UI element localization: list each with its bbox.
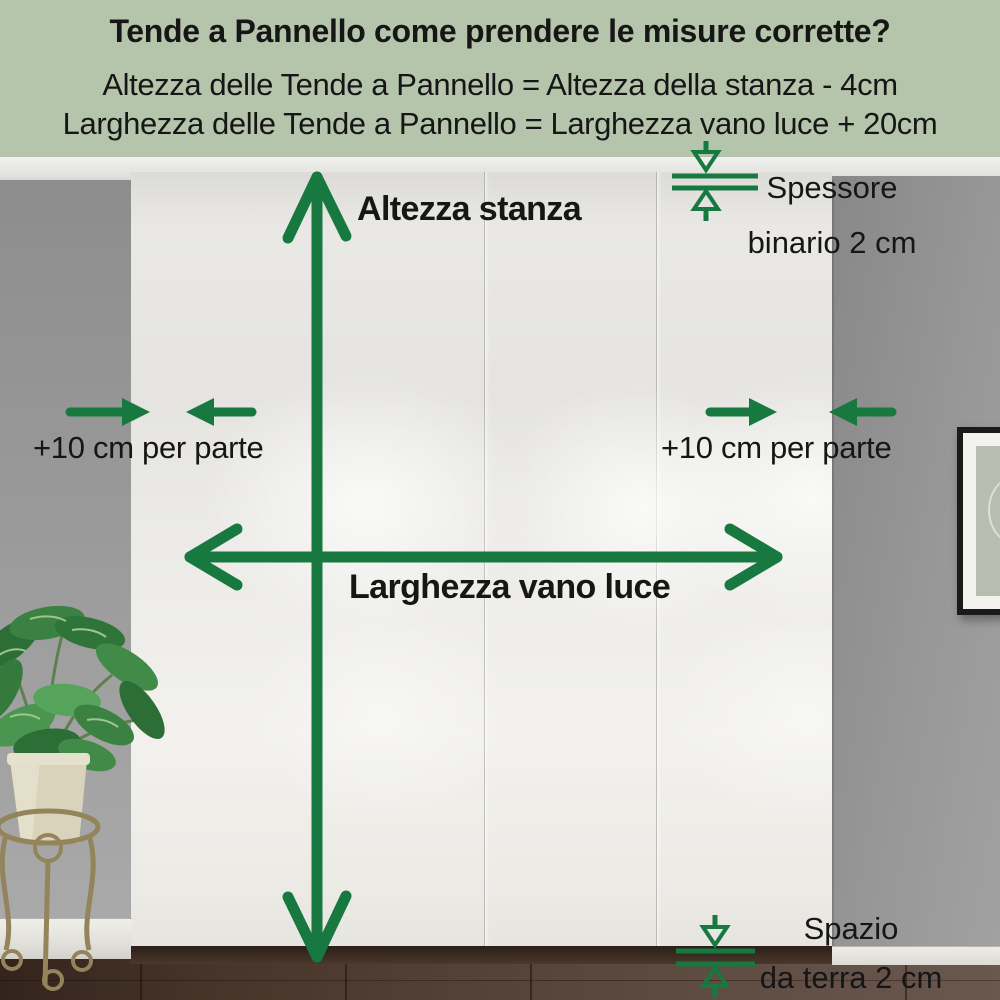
curtain-measuring-infographic: Tende a Pannello come prendere le misure… — [0, 0, 1000, 1000]
room-height-label: Altezza stanza — [357, 190, 581, 229]
picture-frame — [957, 427, 1000, 615]
floor-gap-label-line1: Spazio — [731, 904, 971, 953]
window-light-glow — [671, 602, 832, 822]
framed-artwork — [976, 446, 1000, 596]
floor-gap-label-line2: da terra 2 cm — [731, 953, 971, 1000]
floor-tile-line — [345, 958, 347, 1000]
window-light-glow — [251, 602, 511, 822]
height-formula-text: Altezza delle Tende a Pannello = Altezza… — [0, 67, 1000, 103]
right-margin-label: +10 cm per parte — [661, 430, 891, 466]
floor-gap-label: Spazio da terra 2 cm — [731, 904, 971, 1000]
window-light-glow — [666, 372, 832, 622]
curtain-panels — [131, 172, 832, 952]
page-title: Tende a Pannello come prendere le misure… — [0, 13, 1000, 50]
wall-corner-line — [832, 180, 834, 948]
window-width-label: Larghezza vano luce — [349, 568, 670, 607]
left-margin-label: +10 cm per parte — [33, 430, 263, 466]
artwork-circle-motif — [988, 476, 1000, 544]
rail-thickness-label-line2: binario 2 cm — [712, 215, 952, 270]
curtain-bottom-shadow — [131, 946, 832, 964]
floor-tile-line — [530, 958, 532, 1000]
plant-leaves — [0, 605, 173, 778]
rail-thickness-label-line1: Spessore — [712, 160, 952, 215]
width-formula-text: Larghezza delle Tende a Pannello = Largh… — [0, 106, 1000, 142]
rail-thickness-label: Spessore binario 2 cm — [712, 160, 952, 270]
plant-pot — [7, 753, 90, 843]
potted-plant — [0, 605, 182, 1000]
header-band: Tende a Pannello come prendere le misure… — [0, 0, 1000, 157]
